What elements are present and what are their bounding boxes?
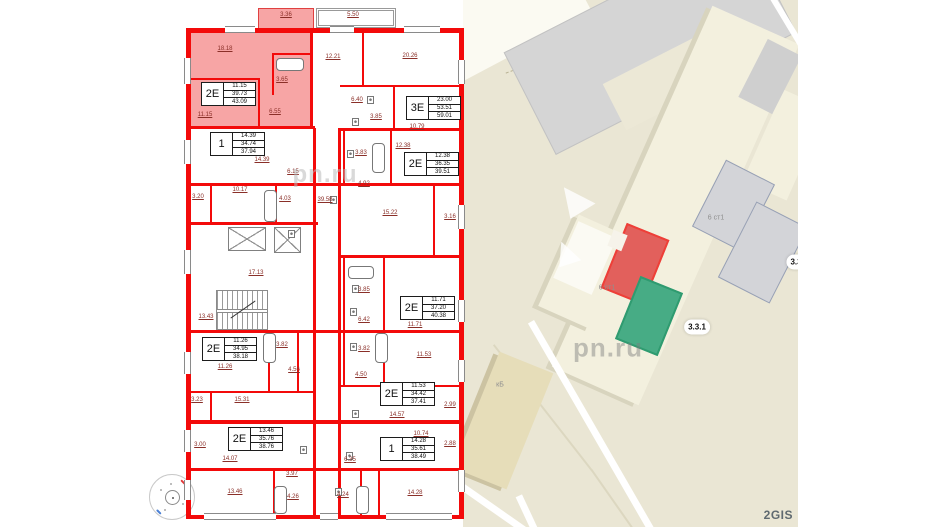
room-area-label: 6.55 — [269, 109, 281, 115]
wall — [272, 53, 310, 55]
room-area-label: 14.28 — [407, 490, 422, 496]
room-area-label: 14.39 — [254, 157, 269, 163]
apartment-area-value: 59.01 — [429, 111, 460, 119]
bathtub-icon — [375, 333, 388, 363]
building-kb — [463, 351, 553, 489]
room-area-label: 2.99 — [444, 402, 456, 408]
apartment-type-label: 2Е — [202, 83, 224, 105]
watermark-map: pn.ru — [573, 333, 643, 364]
apartment-area-value: 11.71 — [423, 297, 454, 304]
room-area-label: 10.79 — [409, 124, 424, 130]
plumbing-fixture-icon — [347, 150, 354, 158]
room-area-label: 14.07 — [222, 456, 237, 462]
wall — [188, 420, 462, 424]
apartment-area-value: 53.51 — [429, 104, 460, 112]
room-area-label: 3.36 — [280, 12, 292, 18]
apartment-area-value: 13.46 — [251, 428, 282, 435]
apartment-info-box[interactable]: 2Е12.3836.3539.51 — [404, 152, 459, 176]
balcony — [316, 8, 396, 28]
apartment-area-value: 39.73 — [224, 90, 255, 98]
apartment-info-box[interactable]: 114.3934.7437.94 — [210, 132, 265, 156]
room-area-label: 11.26 — [218, 364, 233, 370]
window — [458, 205, 465, 229]
window — [184, 430, 191, 452]
plumbing-fixture-icon — [367, 96, 374, 104]
wall — [188, 222, 318, 225]
window — [458, 470, 465, 492]
bathtub-icon — [372, 143, 385, 173]
bathtub-icon — [263, 333, 276, 363]
compass-south-tick — [156, 509, 161, 514]
apartment-area-value: 12.38 — [427, 153, 458, 160]
wall — [362, 30, 364, 87]
apartment-type-label: 1 — [381, 438, 403, 460]
room-area-label: 3.00 — [194, 442, 206, 448]
room-area-label: 2.88 — [444, 441, 456, 447]
apartment-info-box[interactable]: 2Е13.4635.7638.76 — [228, 427, 283, 451]
room-area-label: 5.50 — [347, 12, 359, 18]
bathtub-icon — [274, 486, 287, 514]
apartment-area-value: 14.39 — [233, 133, 264, 140]
room-area-label: 14.57 — [389, 412, 404, 418]
wall — [188, 330, 462, 333]
apartment-areas: 11.7137.2040.38 — [423, 297, 454, 319]
window — [404, 26, 440, 33]
map-building-label: кБ — [496, 382, 504, 389]
room-area-label: 4.92 — [358, 181, 370, 187]
room-area-label: 3.85 — [358, 287, 370, 293]
room-area-label: 17.13 — [248, 270, 263, 276]
wall — [258, 78, 260, 128]
plumbing-fixture-icon — [352, 410, 359, 418]
room-area-label: 3.65 — [276, 77, 288, 83]
right-blank-panel — [798, 0, 936, 527]
wall — [210, 393, 212, 422]
wall — [378, 470, 380, 517]
room-area-label: 3.16 — [444, 214, 456, 220]
apartment-areas: 14.3934.7437.94 — [233, 133, 264, 155]
apartment-areas: 11.1539.7343.09 — [224, 83, 255, 105]
apartment-area-value: 35.76 — [251, 435, 282, 443]
window — [458, 300, 465, 322]
watermark-plan: pn.ru — [293, 161, 358, 189]
apartment-info-box[interactable]: 2Е11.5334.4237.41 — [380, 382, 435, 406]
apartment-info-box[interactable]: 2Е11.7137.2040.38 — [400, 296, 455, 320]
wall — [188, 468, 462, 471]
room-area-label: 15.31 — [234, 397, 249, 403]
room-area-label: 20.26 — [402, 53, 417, 59]
room-area-label: 4.26 — [287, 494, 299, 500]
plumbing-fixture-icon — [350, 308, 357, 316]
room-area-label: 13.46 — [227, 489, 242, 495]
apartment-area-value: 14.28 — [403, 438, 434, 445]
apartment-area-value: 38.76 — [251, 442, 282, 450]
2gis-logo[interactable]: 2GIS — [764, 508, 793, 522]
apartment-areas: 12.3836.3539.51 — [427, 153, 458, 175]
room-area-label: 3.83 — [355, 150, 367, 156]
apartment-area-value: 37.94 — [233, 147, 264, 155]
room-area-label: 15.22 — [382, 210, 397, 216]
map-building-label: 6 ст1 — [599, 285, 615, 292]
plumbing-fixture-icon — [352, 118, 359, 126]
window — [458, 60, 465, 84]
apartment-area-value: 35.61 — [403, 445, 434, 453]
apartment-areas: 23.0053.5159.01 — [429, 97, 460, 119]
room-area-label: 3.82 — [358, 346, 370, 352]
apartment-area-value: 38.49 — [403, 452, 434, 460]
room-area-label: 6.42 — [358, 317, 370, 323]
room-area-label: 4.24 — [337, 492, 349, 498]
wall — [188, 126, 315, 129]
screenshot-stage: pn.ru 3.365.5018.1812.2120.2611.153.656.… — [0, 0, 936, 527]
room-area-label: 4.56 — [288, 367, 300, 373]
apartment-info-box[interactable]: 3Е23.0053.5159.01 — [406, 96, 461, 120]
wall — [188, 391, 315, 393]
apartment-area-value: 36.35 — [427, 160, 458, 168]
room-area-label: 6.35 — [344, 457, 356, 463]
apartment-type-label: 2Е — [203, 338, 225, 360]
apartment-area-value: 38.18 — [225, 352, 256, 360]
room-area-label: 39.58 — [317, 197, 332, 203]
wall — [310, 28, 313, 129]
window — [320, 513, 338, 520]
room-area-label: 3.85 — [370, 114, 382, 120]
wall — [340, 85, 462, 87]
apartment-type-label: 1 — [211, 133, 233, 155]
apartment-area-value: 34.95 — [225, 345, 256, 353]
bathtub-icon — [264, 190, 277, 222]
room-area-label: 3.97 — [286, 471, 298, 477]
room-area-label: 18.18 — [217, 46, 232, 52]
wall — [272, 53, 274, 95]
window — [386, 513, 452, 520]
room-area-label: 11.15 — [198, 112, 213, 118]
compass-hub — [165, 490, 180, 505]
bathtub-icon — [348, 266, 374, 279]
apartment-areas: 11.2634.9538.18 — [225, 338, 256, 360]
wall — [383, 257, 385, 387]
wall — [190, 78, 260, 80]
apartment-area-value: 37.20 — [423, 304, 454, 312]
map-building-label: 6 ст1 — [708, 215, 724, 222]
window — [225, 26, 255, 33]
apartment-area-value: 34.42 — [403, 390, 434, 398]
apartment-area-value: 34.74 — [233, 140, 264, 148]
map-pin[interactable]: 3.3.1 — [684, 320, 710, 335]
window — [184, 250, 191, 274]
apartment-areas: 11.5334.4237.41 — [403, 383, 434, 405]
apartment-area-value: 40.38 — [423, 311, 454, 319]
wall — [297, 332, 299, 393]
room-area-label: 3.23 — [191, 397, 203, 403]
room-area-label: 13.43 — [198, 314, 213, 320]
room-area-label: 11.53 — [417, 352, 432, 358]
apartment-area-value: 43.09 — [224, 97, 255, 105]
wall — [433, 185, 435, 257]
map-pin[interactable]: 3.3 — [786, 255, 798, 270]
window — [184, 480, 191, 500]
apartment-area-value: 11.53 — [403, 383, 434, 390]
apartment-info-box[interactable]: 114.2835.6138.49 — [380, 437, 435, 461]
room-area-label: 3.20 — [192, 194, 204, 200]
plumbing-fixture-icon — [300, 446, 307, 454]
apartment-area-value: 23.00 — [429, 97, 460, 104]
wall — [340, 255, 461, 258]
room-area-label: 3.82 — [276, 342, 288, 348]
window — [184, 352, 191, 374]
apartment-areas: 14.2835.6138.49 — [403, 438, 434, 460]
window — [204, 513, 276, 520]
room-area-label: 4.50 — [355, 372, 367, 378]
room-area-label: 4.03 — [279, 196, 291, 202]
room-area-label: 6.40 — [351, 97, 363, 103]
apartment-type-label: 2Е — [229, 428, 251, 450]
apartment-areas: 13.4635.7638.76 — [251, 428, 282, 450]
map[interactable]: pn.ru 2GIS 6 ст16 ст1кБ3.3.13.3 — [463, 0, 798, 527]
apartment-area-value: 37.41 — [403, 397, 434, 405]
plumbing-fixture-icon — [288, 230, 295, 238]
apartment-area-value: 39.51 — [427, 167, 458, 175]
wall — [210, 185, 212, 224]
wall — [393, 87, 395, 130]
wall — [340, 128, 461, 131]
window — [458, 360, 465, 382]
room-area-label: 12.21 — [325, 54, 340, 60]
apartment-type-label: 2Е — [401, 297, 423, 319]
apartment-info-box[interactable]: 2Е11.2634.9538.18 — [202, 337, 257, 361]
plumbing-fixture-icon — [350, 343, 357, 351]
room-area-label: 12.38 — [395, 143, 410, 149]
wall — [390, 128, 392, 185]
window — [184, 58, 191, 84]
elevator-shaft-icon — [228, 227, 266, 251]
wall — [343, 257, 345, 387]
window — [184, 140, 191, 164]
bathtub-icon — [276, 58, 304, 71]
apartment-area-value: 11.15 — [224, 83, 255, 90]
apartment-area-value: 11.26 — [225, 338, 256, 345]
room-area-label: 11.71 — [408, 322, 423, 328]
apartment-info-box-selected[interactable]: 2Е11.1539.7343.09 — [201, 82, 256, 106]
staircase-icon — [216, 290, 268, 330]
bathtub-icon — [356, 486, 369, 514]
apartment-type-label: 2Е — [381, 383, 403, 405]
room-area-label: 10.17 — [232, 187, 247, 193]
apartment-type-label: 2Е — [405, 153, 427, 175]
apartment-type-label: 3Е — [407, 97, 429, 119]
window — [330, 26, 354, 33]
